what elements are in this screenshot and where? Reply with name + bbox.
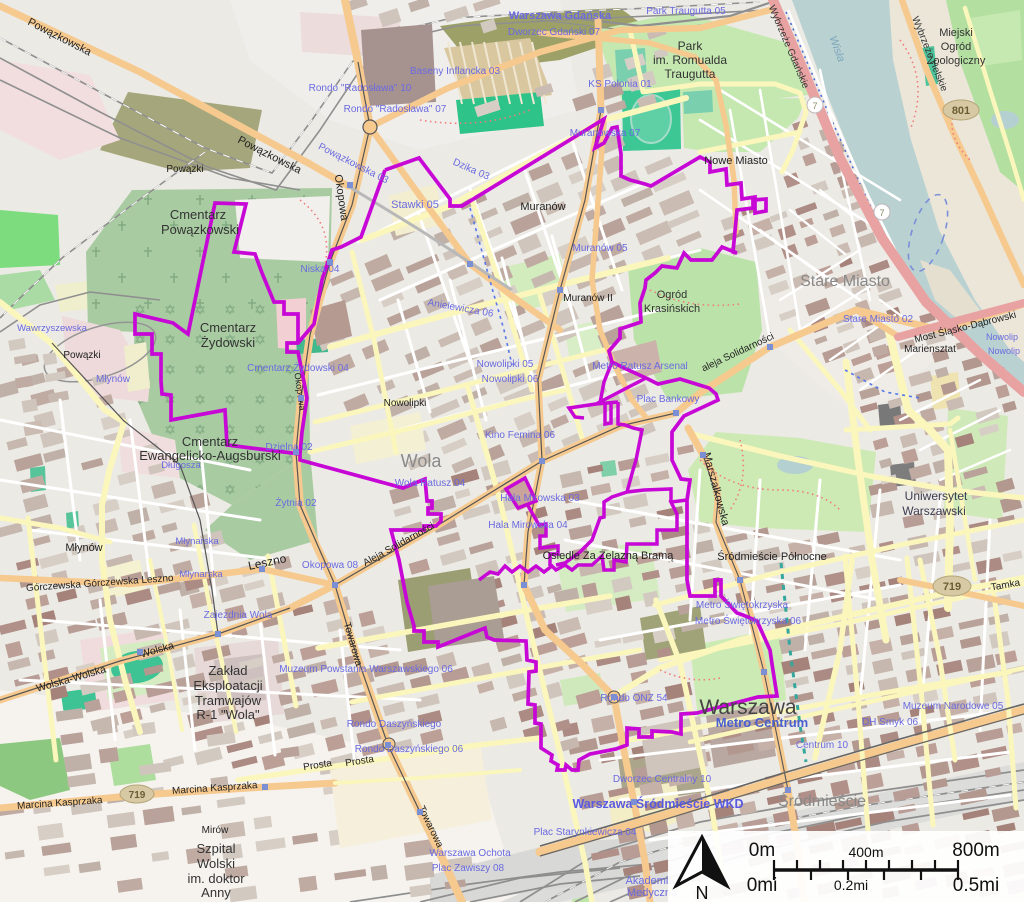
svg-text:Rondo ONZ 54: Rondo ONZ 54 [600, 693, 668, 704]
svg-text:Plac Bankowy: Plac Bankowy [637, 394, 700, 405]
svg-text:Nowolip: Nowolip [986, 332, 1018, 342]
svg-text:Wola Ratusz 04: Wola Ratusz 04 [395, 478, 466, 489]
svg-text:Wola: Wola [401, 451, 443, 471]
svg-text:Hala Mirowska 04: Hala Mirowska 04 [488, 520, 568, 531]
svg-text:Młynarska: Młynarska [179, 569, 223, 580]
svg-text:Metro Centrum: Metro Centrum [716, 715, 808, 730]
svg-text:Uniwersytet: Uniwersytet [905, 489, 968, 503]
svg-text:Mariensztat: Mariensztat [904, 344, 956, 355]
svg-text:Mirów: Mirów [202, 825, 229, 836]
svg-text:Plac Starynkiewicza 04: Plac Starynkiewicza 04 [534, 827, 637, 838]
svg-text:KS Polonia 01: KS Polonia 01 [588, 79, 652, 90]
svg-text:Akademia: Akademia [626, 875, 676, 887]
svg-text:400m: 400m [848, 844, 883, 860]
svg-text:Osiedle Za Żelazną Bramą: Osiedle Za Żelazną Bramą [543, 549, 675, 562]
svg-text:Traugutta: Traugutta [665, 67, 716, 81]
svg-text:Park: Park [678, 39, 704, 53]
svg-text:Rondo Daszyńskiego: Rondo Daszyńskiego [347, 719, 442, 730]
svg-text:Warszawa Ochota: Warszawa Ochota [429, 848, 511, 859]
svg-text:Stawki 05: Stawki 05 [391, 199, 439, 211]
svg-text:Warszawski: Warszawski [902, 504, 966, 518]
svg-text:800m: 800m [952, 840, 1000, 861]
svg-text:Muranowska 07: Muranowska 07 [570, 128, 641, 139]
svg-text:Metro Ratusz Arsenal: Metro Ratusz Arsenal [592, 361, 688, 372]
svg-text:Kino Femina 06: Kino Femina 06 [485, 430, 555, 441]
svg-text:im. Romualda: im. Romualda [653, 53, 727, 67]
svg-text:Młynów: Młynów [96, 374, 131, 385]
svg-text:Muranów: Muranów [520, 201, 565, 213]
svg-text:7: 7 [812, 101, 817, 111]
svg-text:0.2mi: 0.2mi [834, 877, 868, 893]
svg-text:801: 801 [952, 105, 970, 117]
svg-text:Park Traugutta 05: Park Traugutta 05 [646, 6, 726, 17]
svg-text:Metro Świętokrzyska 06: Metro Świętokrzyska 06 [695, 614, 802, 627]
svg-text:Śródmieście: Śródmieście [778, 791, 866, 810]
svg-text:im. doktor: im. doktor [187, 871, 245, 886]
svg-text:R-1 "Wola": R-1 "Wola" [196, 707, 260, 722]
svg-text:Muranów 05: Muranów 05 [572, 243, 627, 254]
svg-text:Ogród: Ogród [941, 41, 972, 53]
svg-text:Stare Miasto 02: Stare Miasto 02 [843, 314, 913, 325]
svg-text:Muzeum Powstania Warszawskiego: Muzeum Powstania Warszawskiego 06 [279, 664, 453, 675]
svg-text:DH Smyk 06: DH Smyk 06 [862, 717, 919, 728]
svg-text:Żydowski: Żydowski [201, 335, 255, 350]
svg-text:Warszawa Śródmieście WKD: Warszawa Śródmieście WKD [572, 796, 743, 811]
svg-text:Wawrzyszewska: Wawrzyszewska [17, 323, 88, 334]
svg-text:Powązkowski: Powązkowski [161, 222, 239, 237]
svg-text:Cmentarz: Cmentarz [170, 207, 226, 222]
svg-text:Eksploatacji: Eksploatacji [193, 678, 262, 693]
svg-text:Ogród: Ogród [657, 289, 688, 301]
svg-text:Centrum 10: Centrum 10 [796, 740, 849, 751]
svg-text:N: N [696, 883, 709, 902]
svg-text:Rondo "Radosława" 07: Rondo "Radosława" 07 [344, 104, 447, 115]
svg-text:Śródmieście Północne: Śródmieście Północne [717, 550, 826, 563]
svg-text:Hala Mirowska 03: Hala Mirowska 03 [500, 493, 580, 504]
svg-text:Dworzec Centralny 10: Dworzec Centralny 10 [613, 774, 712, 785]
svg-text:Plac Zawiszy 08: Plac Zawiszy 08 [432, 863, 505, 874]
svg-text:Anny: Anny [201, 885, 231, 900]
svg-text:Powązki: Powązki [166, 164, 203, 175]
svg-text:Nowolipki 05: Nowolipki 05 [477, 359, 534, 370]
svg-text:Baseny Inflancka 03: Baseny Inflancka 03 [410, 66, 500, 77]
svg-text:719: 719 [943, 581, 961, 593]
svg-text:Powązki: Powązki [63, 350, 100, 361]
svg-text:Krasińskich: Krasińskich [644, 303, 700, 315]
svg-text:Młynów: Młynów [65, 542, 102, 554]
svg-text:Szpital: Szpital [196, 841, 235, 856]
svg-text:Muzeum Narodowe 05: Muzeum Narodowe 05 [903, 701, 1004, 712]
svg-text:Zajezdnia Wola: Zajezdnia Wola [204, 610, 273, 621]
svg-text:Zakład: Zakład [208, 663, 247, 678]
svg-text:Miejski: Miejski [939, 27, 973, 39]
svg-text:Dzielna 02: Dzielna 02 [265, 442, 313, 453]
svg-text:719: 719 [129, 790, 146, 801]
svg-text:Stare Miasto: Stare Miasto [800, 273, 890, 290]
svg-text:Nowolip: Nowolip [988, 346, 1020, 356]
svg-text:Nowolipki: Nowolipki [384, 398, 427, 409]
svg-text:Rondo "Radosława" 10: Rondo "Radosława" 10 [309, 83, 412, 94]
svg-text:Nowolipki 06: Nowolipki 06 [482, 374, 539, 385]
svg-text:Nowe Miasto: Nowe Miasto [704, 155, 768, 167]
svg-text:Warszawa Gdańska: Warszawa Gdańska [509, 10, 612, 22]
svg-text:7: 7 [879, 208, 884, 218]
svg-text:0.5mi: 0.5mi [953, 875, 999, 896]
svg-text:Tramwajów: Tramwajów [195, 693, 262, 708]
svg-text:Żytnia 02: Żytnia 02 [275, 496, 317, 509]
svg-text:Cmentarz: Cmentarz [182, 434, 238, 449]
svg-text:Dworzec Gdański 07: Dworzec Gdański 07 [508, 27, 601, 38]
svg-text:0mi: 0mi [747, 875, 778, 896]
svg-text:Okopowa 08: Okopowa 08 [302, 560, 359, 571]
svg-text:Cmentarz Żydowski 04: Cmentarz Żydowski 04 [247, 361, 349, 374]
svg-text:Długosza: Długosza [161, 460, 201, 471]
svg-text:0m: 0m [749, 840, 775, 861]
svg-text:Wolski: Wolski [197, 856, 235, 871]
svg-text:Metro Świętokrzyska: Metro Świętokrzyska [696, 598, 789, 611]
svg-text:Cmentarz: Cmentarz [200, 320, 256, 335]
svg-text:Muranów II: Muranów II [563, 293, 612, 304]
svg-text:Niska 04: Niska 04 [301, 264, 340, 275]
svg-text:Młynarska: Młynarska [175, 536, 219, 547]
